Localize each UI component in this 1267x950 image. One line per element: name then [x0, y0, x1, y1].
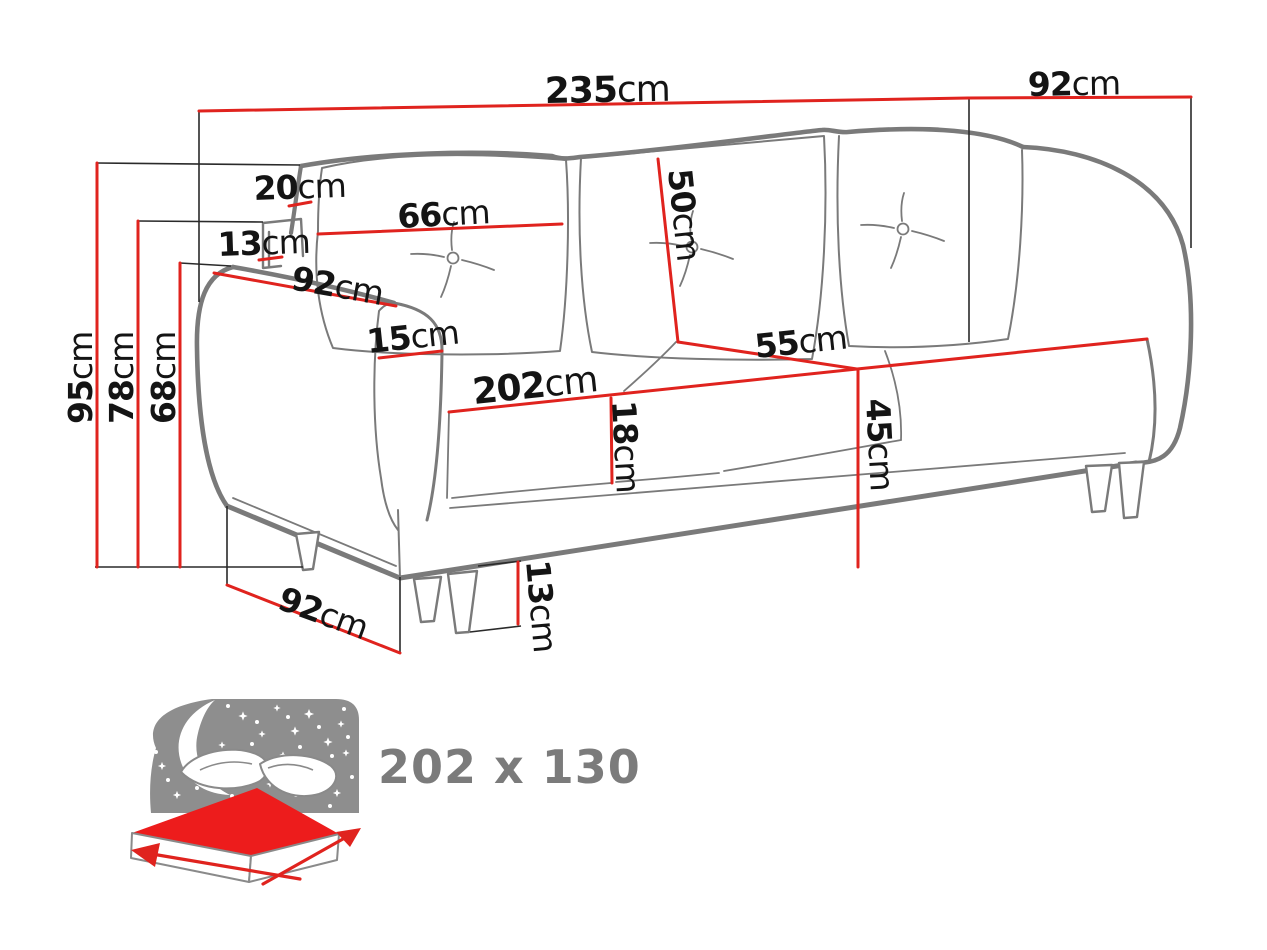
leg-right-a	[1086, 465, 1112, 512]
dim-label-seat-height: 45cm	[858, 397, 902, 491]
dim-label-armrest-height: 68cm	[144, 332, 183, 424]
leg-front-left-b	[448, 571, 477, 633]
leg-front-left-a	[414, 577, 441, 622]
sleeping-function-icon: 202 x 130	[131, 699, 641, 884]
seat-divider-left	[624, 342, 676, 391]
dim-label-shelf-height: 78cm	[102, 332, 141, 424]
leg-back-left	[296, 532, 319, 570]
dim-label-armrest-length: 92cm	[289, 258, 387, 312]
leg-right-b	[1119, 462, 1144, 518]
backrest-top-edge	[301, 129, 1023, 166]
dim-label-total-width: 235cm	[544, 69, 670, 112]
right-armrest	[1023, 147, 1191, 463]
dim-label-base-depth: 92cm	[273, 579, 373, 647]
seat-left-edge	[447, 412, 449, 498]
dim-label-cushion-width: 66cm	[396, 192, 490, 236]
sleeping-area-label: 202 x 130	[378, 740, 641, 794]
base-bottom-edge	[227, 463, 1136, 578]
sofa-legs	[296, 462, 1144, 633]
right-armrest-inner-edge	[1147, 339, 1155, 462]
base-front-corner	[398, 510, 400, 578]
dim-label-cushion-thickness: 18cm	[604, 399, 648, 493]
left-armrest-outer	[197, 267, 233, 506]
dim-label-seat-depth: 55cm	[753, 318, 849, 366]
dim-label-leg-height: 13cm	[518, 558, 565, 653]
sofa-dimension-diagram: 235cm 92cm 20cm 13cm 66cm 50cm 92cm 15cm…	[0, 0, 1267, 950]
cushion-button-right	[861, 193, 944, 268]
dim-label-total-depth: 92cm	[1027, 63, 1120, 104]
back-cushion-right	[837, 136, 1022, 347]
dim-label-total-height: 95cm	[61, 332, 100, 424]
dim-label-backrest-top: 20cm	[253, 166, 347, 208]
dim-label-seat-width: 202cm	[471, 359, 600, 413]
